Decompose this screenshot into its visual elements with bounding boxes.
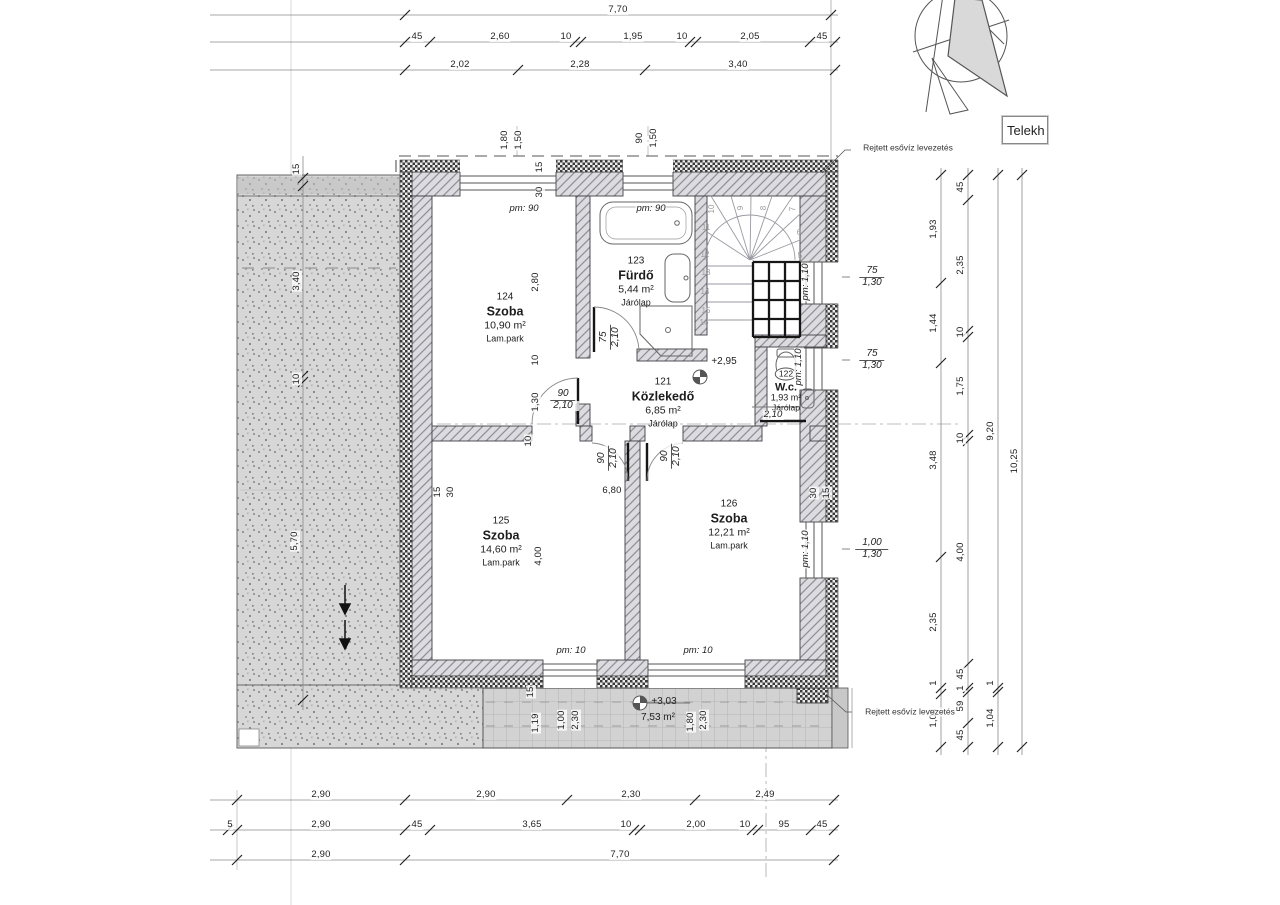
dim-label: 10 xyxy=(956,432,966,445)
dim-label: 7,70 xyxy=(609,850,630,860)
dim-label: 1,93 xyxy=(929,218,939,239)
dim-label: 15 xyxy=(822,487,832,500)
telek-boundary-box: Telekh xyxy=(1002,116,1048,144)
snum-label: 8 xyxy=(760,205,768,211)
dim-label: 10 xyxy=(620,820,633,830)
dim-label: 1,00 xyxy=(557,709,567,730)
room-name: Szoba xyxy=(480,528,521,544)
frac-label: 902,10 xyxy=(660,439,682,472)
pm-label: pm: 90 xyxy=(635,204,666,214)
dim-label: 2,90 xyxy=(475,790,496,800)
room-no: 125 xyxy=(480,515,521,528)
dim-label: 45 xyxy=(816,820,829,830)
dim-label: 30 xyxy=(535,186,545,199)
room-area: 5,44 m² xyxy=(618,284,654,298)
dim-label: 1,50 xyxy=(514,129,524,150)
dim-label: 10 xyxy=(676,32,689,42)
dim-label: 2,00 xyxy=(685,820,706,830)
dim-label: 2,90 xyxy=(310,850,331,860)
dim-label: 9,20 xyxy=(986,420,996,441)
dim-label: 2,30 xyxy=(620,790,641,800)
snum-label: 9 xyxy=(737,205,745,211)
dim-label: 15 xyxy=(535,161,545,174)
dim-label: 2,02 xyxy=(449,60,470,70)
pm-label: pm: 1,10 xyxy=(801,263,811,302)
room-no: 121 xyxy=(632,376,695,389)
dim-label: 2,30 xyxy=(571,709,581,730)
dim-label: 1,80 xyxy=(500,129,510,150)
floor-plan-canvas: 124Szoba10,90 m²Lam.park123Fürdő5,44 m²J… xyxy=(0,0,1280,905)
snum-label: 7 xyxy=(789,206,797,212)
dim-label: 1 xyxy=(986,679,996,686)
label-layer: 124Szoba10,90 m²Lam.park123Fürdő5,44 m²J… xyxy=(0,0,1280,905)
dim-label: 10 xyxy=(956,326,966,339)
dim-label: 45 xyxy=(956,729,966,742)
room-name: Közlekedő xyxy=(632,389,695,405)
room-no: 126 xyxy=(708,498,749,511)
dim-label: 3,48 xyxy=(929,449,939,470)
dim-label: 2,05 xyxy=(739,32,760,42)
room-floor: Lam.park xyxy=(708,541,749,553)
pm-label: 2,10 xyxy=(763,410,784,420)
telek-boundary-label: Telekh xyxy=(1003,123,1045,138)
dim-label: 2,35 xyxy=(956,254,966,275)
dim-label: 2,49 xyxy=(754,790,775,800)
dim-label: 3,40 xyxy=(292,270,302,291)
frac-label: 752,10 xyxy=(599,320,621,353)
dim-label: 1 xyxy=(956,684,966,691)
room-label-126: 126Szoba12,21 m²Lam.park xyxy=(708,498,749,553)
snum-label: 14 xyxy=(700,288,711,296)
level-label: +2,95 xyxy=(710,357,737,368)
dim-label: 45 xyxy=(816,32,829,42)
frac-label: 751,30 xyxy=(855,266,888,288)
room-label-124: 124Szoba10,90 m²Lam.park xyxy=(484,291,525,346)
snum-label: 11 xyxy=(701,224,711,232)
dim-label: 3,65 xyxy=(521,820,542,830)
dim-label: 2,90 xyxy=(310,790,331,800)
snum-label: 6 xyxy=(796,229,802,237)
room-name: Szoba xyxy=(484,304,525,320)
dim-label: 1,80 xyxy=(686,711,696,732)
room-area: 10,90 m² xyxy=(484,320,525,334)
dim-label: 45 xyxy=(411,32,424,42)
frac-label: 1,001,30 xyxy=(855,538,888,560)
room-floor: Lam.park xyxy=(480,558,521,570)
frac-label: 902,10 xyxy=(546,389,579,411)
dim-label: 6,80 xyxy=(601,486,622,496)
dim-label: 1,75 xyxy=(956,375,966,396)
dim-label: 15 xyxy=(292,163,302,176)
dim-label: 30 xyxy=(446,486,456,499)
dim-label: 1,50 xyxy=(649,127,659,148)
snum-label: 12 xyxy=(700,251,711,259)
dim-label: 1 xyxy=(929,679,939,686)
frac-label: 902,10 xyxy=(597,441,619,474)
level-label: 7,53 m² xyxy=(640,713,676,724)
dim-label: 1,95 xyxy=(622,32,643,42)
pm-label: pm: 10 xyxy=(682,646,713,656)
snum-label: 10 xyxy=(708,204,716,215)
dim-label: 45 xyxy=(411,820,424,830)
room-floor: Járólap xyxy=(618,298,654,310)
dim-label: 4,00 xyxy=(534,545,544,566)
room-floor: Lam.park xyxy=(484,334,525,346)
level-label: +3,03 xyxy=(650,697,677,708)
room-label-123: 123Fürdő5,44 m²Járólap xyxy=(618,255,654,310)
dim-label: 10 xyxy=(531,354,541,367)
note-label: Rejtett esővíz levezetés xyxy=(862,144,954,153)
dim-label: 10 xyxy=(560,32,573,42)
room-label-125: 125Szoba14,60 m²Lam.park xyxy=(480,515,521,570)
dim-label: 45 xyxy=(956,181,966,194)
dim-label: 2,35 xyxy=(929,611,939,632)
dim-label: 5 xyxy=(226,820,233,830)
dim-label: 1,19 xyxy=(531,712,541,733)
dim-label: 2,60 xyxy=(489,32,510,42)
dim-label: 30 xyxy=(809,487,819,500)
room-label-121: 121Közlekedő6,85 m²Járólap xyxy=(632,376,695,431)
dim-label: 45 xyxy=(956,668,966,681)
dim-label: 10 xyxy=(292,373,302,386)
note-label: Rejtett esővíz levezetés xyxy=(864,708,956,717)
dim-label: 10,25 xyxy=(1010,448,1020,475)
dim-label: 3,40 xyxy=(727,60,748,70)
room-area: 6,85 m² xyxy=(632,405,695,419)
room-no: 124 xyxy=(484,291,525,304)
pm-label: pm: 10 xyxy=(555,646,586,656)
room-name: Fürdő xyxy=(618,268,654,284)
dim-label: 15 xyxy=(526,686,536,699)
dim-label: 2,30 xyxy=(699,709,709,730)
dim-label: 2,28 xyxy=(569,60,590,70)
dim-label: 90 xyxy=(635,132,645,145)
pm-label: pm: 90 xyxy=(508,204,539,214)
dim-label: 2,80 xyxy=(531,271,541,292)
dim-label: 95 xyxy=(778,820,791,830)
snum-label: 13 xyxy=(701,269,712,277)
frac-label: 751,30 xyxy=(855,349,888,371)
snum-label: 16 xyxy=(699,319,710,327)
pm-label: pm: 1,10 xyxy=(794,348,804,387)
dim-label: 1,30 xyxy=(531,391,541,412)
pm-label: pm: 1,10 xyxy=(801,530,811,569)
dim-label: 1,04 xyxy=(986,707,996,728)
room-name: Szoba xyxy=(708,511,749,527)
snum-label: 5 xyxy=(797,252,803,260)
dim-label: 5,70 xyxy=(290,530,300,551)
room-no: 123 xyxy=(618,255,654,268)
dim-label: 10 xyxy=(739,820,752,830)
snum-label: 15 xyxy=(701,307,712,315)
dim-label: 1,44 xyxy=(929,312,939,333)
dim-label: 59 xyxy=(956,700,966,713)
dim-label: 7,70 xyxy=(607,5,628,15)
room-floor: Járólap xyxy=(632,419,695,431)
room-area: 12,21 m² xyxy=(708,527,749,541)
room-area: 14,60 m² xyxy=(480,544,521,558)
dim-label: 4,00 xyxy=(956,541,966,562)
dim-label: 15 xyxy=(433,486,443,499)
dim-label: 2,90 xyxy=(310,820,331,830)
dim-label: 10 xyxy=(524,435,534,448)
